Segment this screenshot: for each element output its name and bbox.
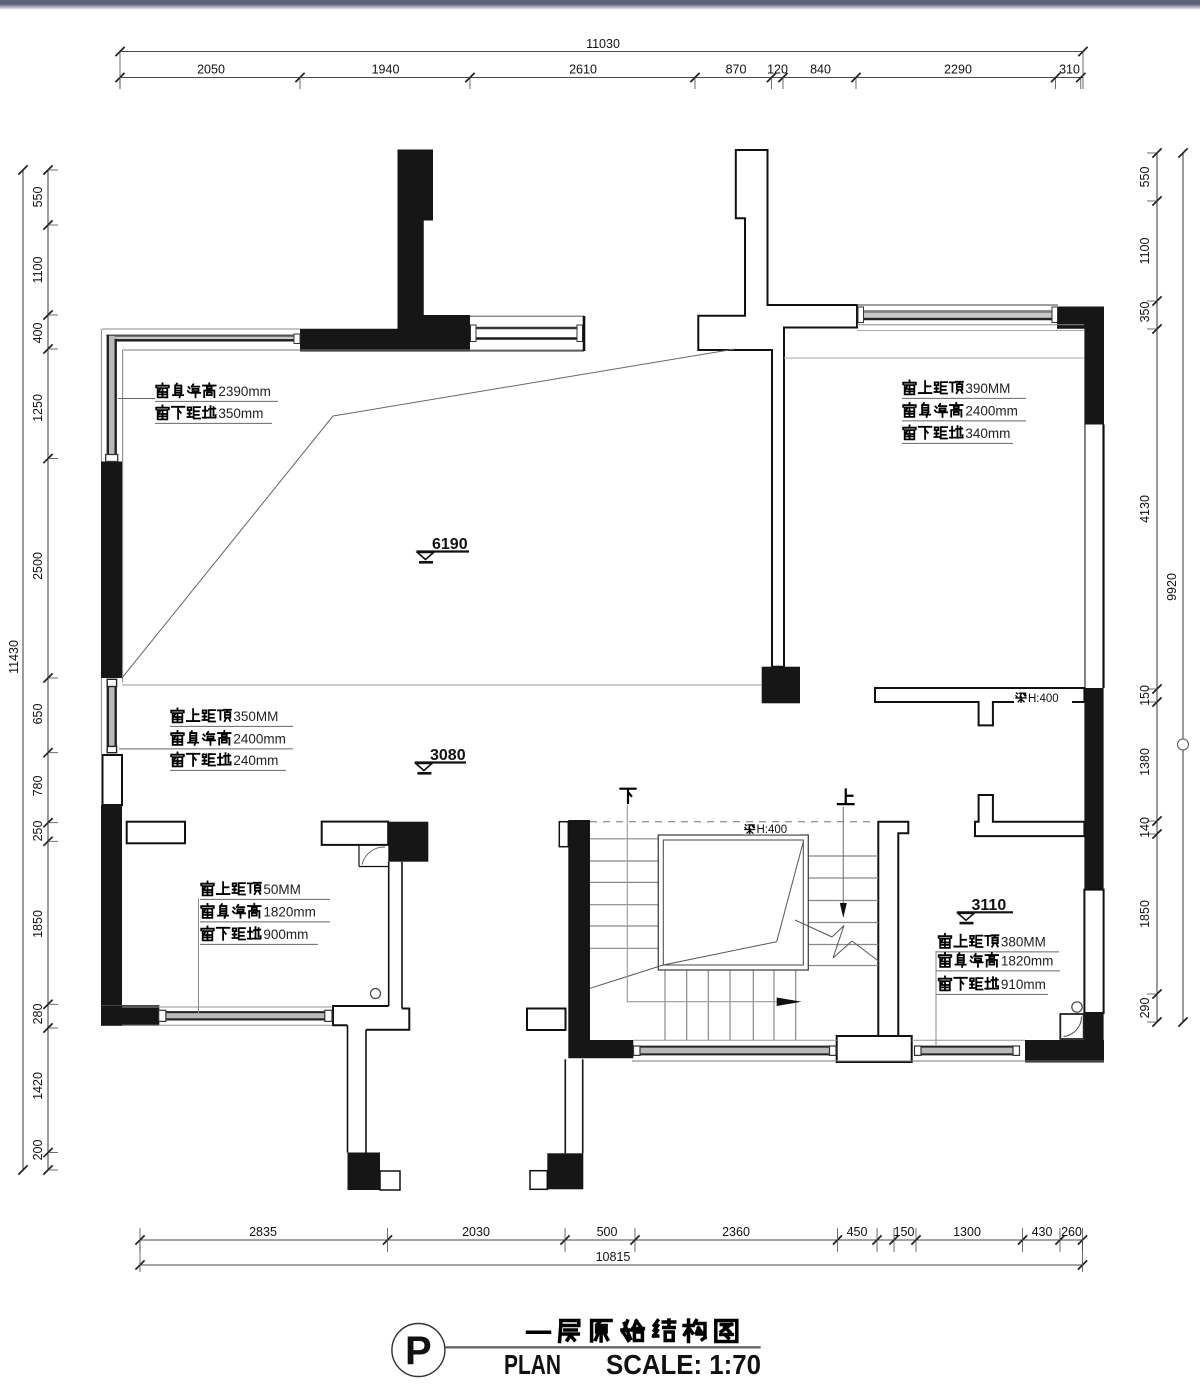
svg-text:900mm: 900mm xyxy=(263,927,308,942)
svg-text:290: 290 xyxy=(1138,998,1152,1019)
svg-text:1100: 1100 xyxy=(31,257,45,284)
svg-text:PLAN: PLAN xyxy=(504,1349,561,1380)
svg-text:380MM: 380MM xyxy=(1001,935,1046,950)
svg-text:310: 310 xyxy=(1059,63,1080,77)
svg-text:2835: 2835 xyxy=(249,1225,277,1239)
svg-text:340mm: 340mm xyxy=(965,426,1010,441)
svg-text:200: 200 xyxy=(31,1140,45,1161)
svg-text:550: 550 xyxy=(1138,167,1152,188)
svg-text:1380: 1380 xyxy=(1138,748,1152,776)
svg-text:1100: 1100 xyxy=(1138,238,1152,265)
svg-text:1850: 1850 xyxy=(31,910,45,938)
svg-text:2290: 2290 xyxy=(944,63,972,77)
svg-text:260: 260 xyxy=(1061,1225,1082,1239)
svg-text:10815: 10815 xyxy=(596,1250,631,1264)
svg-text:1850: 1850 xyxy=(1138,900,1152,928)
svg-text:H:400: H:400 xyxy=(1028,693,1059,705)
svg-text:1250: 1250 xyxy=(31,394,45,422)
svg-text:11030: 11030 xyxy=(586,37,620,51)
svg-text:500: 500 xyxy=(597,1225,618,1239)
svg-text:2360: 2360 xyxy=(722,1225,750,1239)
svg-text:430: 430 xyxy=(1032,1225,1053,1239)
svg-text:3080: 3080 xyxy=(430,747,466,764)
svg-text:1300: 1300 xyxy=(953,1225,981,1239)
svg-text:11430: 11430 xyxy=(7,640,21,674)
svg-text:2400mm: 2400mm xyxy=(965,404,1018,419)
svg-text:140: 140 xyxy=(1138,817,1152,838)
svg-text:P: P xyxy=(405,1329,432,1373)
svg-text:1820mm: 1820mm xyxy=(1001,954,1054,969)
svg-text:910mm: 910mm xyxy=(1001,977,1046,992)
svg-text:50MM: 50MM xyxy=(263,882,301,897)
svg-text:150: 150 xyxy=(894,1225,915,1239)
svg-text:840: 840 xyxy=(810,63,831,77)
svg-text:1420: 1420 xyxy=(31,1072,45,1100)
svg-text:650: 650 xyxy=(31,704,45,725)
svg-text:250: 250 xyxy=(31,821,45,842)
svg-text:4130: 4130 xyxy=(1138,495,1152,523)
svg-text:550: 550 xyxy=(31,187,45,208)
svg-text:2390mm: 2390mm xyxy=(218,384,271,399)
svg-text:780: 780 xyxy=(31,776,45,797)
svg-text:350MM: 350MM xyxy=(233,709,278,724)
svg-text:SCALE: 1:70: SCALE: 1:70 xyxy=(606,1349,761,1380)
svg-text:350: 350 xyxy=(1138,302,1152,323)
svg-text:6190: 6190 xyxy=(432,536,468,553)
svg-text:2030: 2030 xyxy=(462,1225,490,1239)
svg-text:2050: 2050 xyxy=(197,63,225,77)
svg-text:150: 150 xyxy=(1138,685,1152,706)
svg-text:9920: 9920 xyxy=(1165,573,1179,601)
svg-text:1820mm: 1820mm xyxy=(263,905,316,920)
svg-text:2610: 2610 xyxy=(569,63,597,77)
svg-text:400: 400 xyxy=(31,323,45,344)
svg-text:H:400: H:400 xyxy=(757,824,788,836)
svg-text:350mm: 350mm xyxy=(218,406,263,421)
svg-text:120: 120 xyxy=(767,63,788,77)
svg-text:280: 280 xyxy=(31,1004,45,1025)
svg-text:2500: 2500 xyxy=(31,552,45,580)
svg-text:2400mm: 2400mm xyxy=(233,732,286,747)
svg-text:1940: 1940 xyxy=(372,63,400,77)
svg-text:450: 450 xyxy=(847,1225,868,1239)
svg-text:870: 870 xyxy=(726,63,747,77)
svg-text:390MM: 390MM xyxy=(965,381,1010,396)
svg-text:240mm: 240mm xyxy=(233,753,278,768)
svg-text:3110: 3110 xyxy=(972,897,1007,914)
